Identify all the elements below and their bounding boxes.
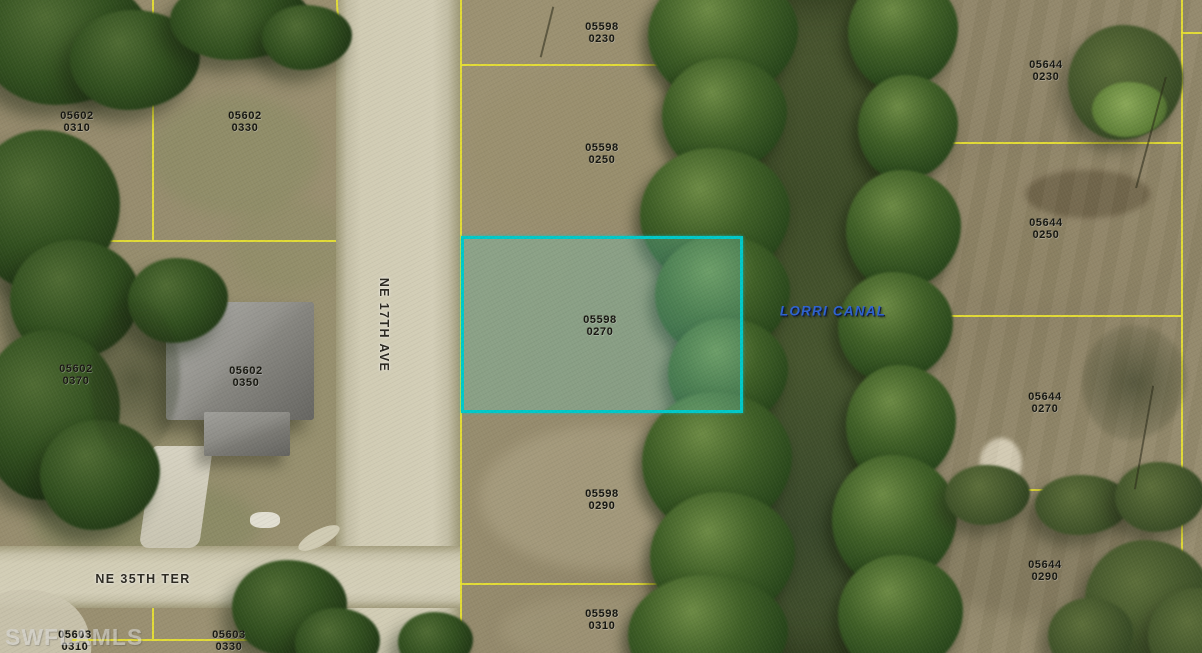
- parcel-block-number: 05603: [212, 629, 246, 641]
- parcel-lot-number: 0310: [60, 122, 94, 134]
- parcel-label-05598-0250: 055980250: [585, 142, 619, 166]
- parcel-lot-number: 0310: [585, 620, 619, 632]
- parcel-lot-number: 0370: [59, 375, 93, 387]
- parcel-label-05602-0330: 056020330: [228, 110, 262, 134]
- watermark-swflamls: SWFLAMLS: [5, 624, 143, 651]
- parcel-block-number: 05598: [585, 142, 619, 154]
- parcel-lot-number: 0250: [585, 154, 619, 166]
- parcel-lot-number: 0350: [229, 377, 263, 389]
- parcel-label-05598-0310: 055980310: [585, 608, 619, 632]
- parcel-lot-number: 0230: [585, 33, 619, 45]
- canal-label: LORRI CANAL: [780, 304, 886, 319]
- parcel-block-number: 05598: [585, 21, 619, 33]
- parcel-label-05644-0230: 056440230: [1029, 59, 1063, 83]
- parcel-labels-layer: 0560203100560203300560203700560203500559…: [0, 0, 1202, 653]
- parcel-block-number: 05602: [228, 110, 262, 122]
- parcel-lot-number: 0230: [1029, 71, 1063, 83]
- parcel-label-05603-0330: 056030330: [212, 629, 246, 653]
- parcel-lot-number: 0250: [1029, 229, 1063, 241]
- parcel-label-05644-0270: 056440270: [1028, 391, 1062, 415]
- parcel-label-05644-0250: 056440250: [1029, 217, 1063, 241]
- parcel-label-05598-0230: 055980230: [585, 21, 619, 45]
- parcel-label-05598-0290: 055980290: [585, 488, 619, 512]
- street-label-ne-17th-ave: NE 17TH AVE: [377, 278, 391, 373]
- parcel-lot-number: 0330: [212, 641, 246, 653]
- parcel-block-number: 05598: [585, 608, 619, 620]
- parcel-label-05602-0370: 056020370: [59, 363, 93, 387]
- parcel-lot-number: 0330: [228, 122, 262, 134]
- parcel-block-number: 05598: [583, 314, 617, 326]
- parcel-block-number: 05602: [60, 110, 94, 122]
- parcel-lot-number: 0270: [1028, 403, 1062, 415]
- parcel-block-number: 05644: [1028, 559, 1062, 571]
- parcel-lot-number: 0290: [585, 500, 619, 512]
- parcel-lot-number: 0270: [583, 326, 617, 338]
- parcel-lot-number: 0290: [1028, 571, 1062, 583]
- parcel-block-number: 05644: [1028, 391, 1062, 403]
- parcel-label-05602-0350: 056020350: [229, 365, 263, 389]
- parcel-block-number: 05602: [229, 365, 263, 377]
- parcel-label-05598-0270: 055980270: [583, 314, 617, 338]
- parcel-block-number: 05598: [585, 488, 619, 500]
- parcel-block-number: 05644: [1029, 217, 1063, 229]
- parcel-block-number: 05602: [59, 363, 93, 375]
- parcel-label-05602-0310: 056020310: [60, 110, 94, 134]
- street-label-ne-35th-ter: NE 35TH TER: [95, 572, 190, 586]
- parcel-block-number: 05644: [1029, 59, 1063, 71]
- parcel-label-05644-0290: 056440290: [1028, 559, 1062, 583]
- aerial-parcel-map: 0560203100560203300560203700560203500559…: [0, 0, 1202, 653]
